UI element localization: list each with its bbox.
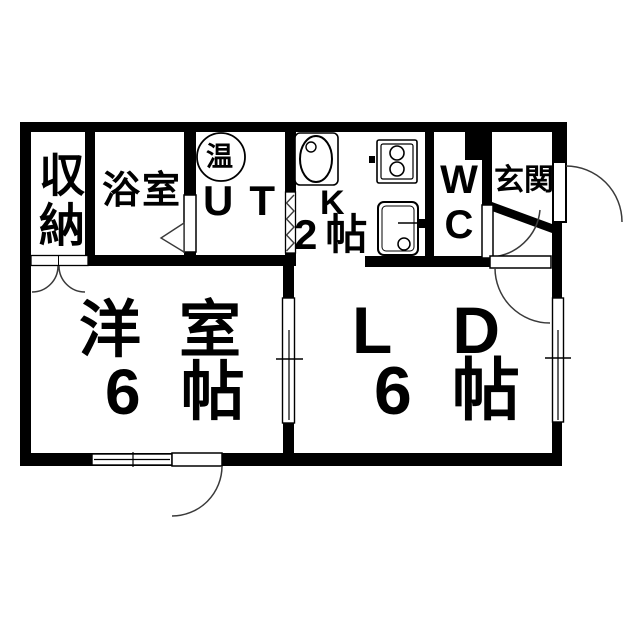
room-size-living-dining: 6帖 bbox=[374, 357, 560, 425]
washbasin bbox=[295, 133, 338, 185]
window-west-bottom bbox=[92, 452, 172, 467]
wall-kitchen-wc bbox=[425, 122, 434, 267]
wall-left bbox=[20, 122, 31, 466]
room-size-kitchen: 2帖 bbox=[294, 214, 375, 256]
wall-divider-top bbox=[283, 262, 294, 298]
west-room-door bbox=[172, 453, 222, 516]
room-label-bathroom: 浴室 bbox=[102, 172, 182, 210]
room-label-storage: 収納 bbox=[36, 151, 82, 251]
room-label-entrance: 玄関 bbox=[494, 166, 554, 196]
wall-wc-entrance bbox=[482, 122, 492, 205]
front-door bbox=[553, 162, 622, 222]
stove bbox=[369, 140, 417, 183]
wall-right-corner-block bbox=[552, 122, 567, 162]
wall-divider-bottom bbox=[283, 423, 294, 453]
kitchen-sink bbox=[378, 202, 426, 255]
floorplan-canvas: 収納 浴室 温 UT K 2帖 WC 玄関 洋室 6帖 LD 6帖 bbox=[0, 0, 640, 640]
wall-bath-ut-upper bbox=[184, 132, 196, 195]
room-label-toilet: WC bbox=[436, 158, 482, 248]
storage-door bbox=[31, 256, 88, 293]
wall-entrance-diagonal bbox=[492, 202, 552, 233]
room-label-western-room: 洋室 bbox=[79, 300, 279, 362]
room-label-water-heater: 温 bbox=[206, 144, 233, 171]
room-size-western-room: 6帖 bbox=[105, 360, 285, 424]
wall-right-mid bbox=[552, 222, 562, 298]
wall-storage-bath bbox=[85, 132, 95, 255]
room-label-utility: UT bbox=[203, 180, 291, 222]
